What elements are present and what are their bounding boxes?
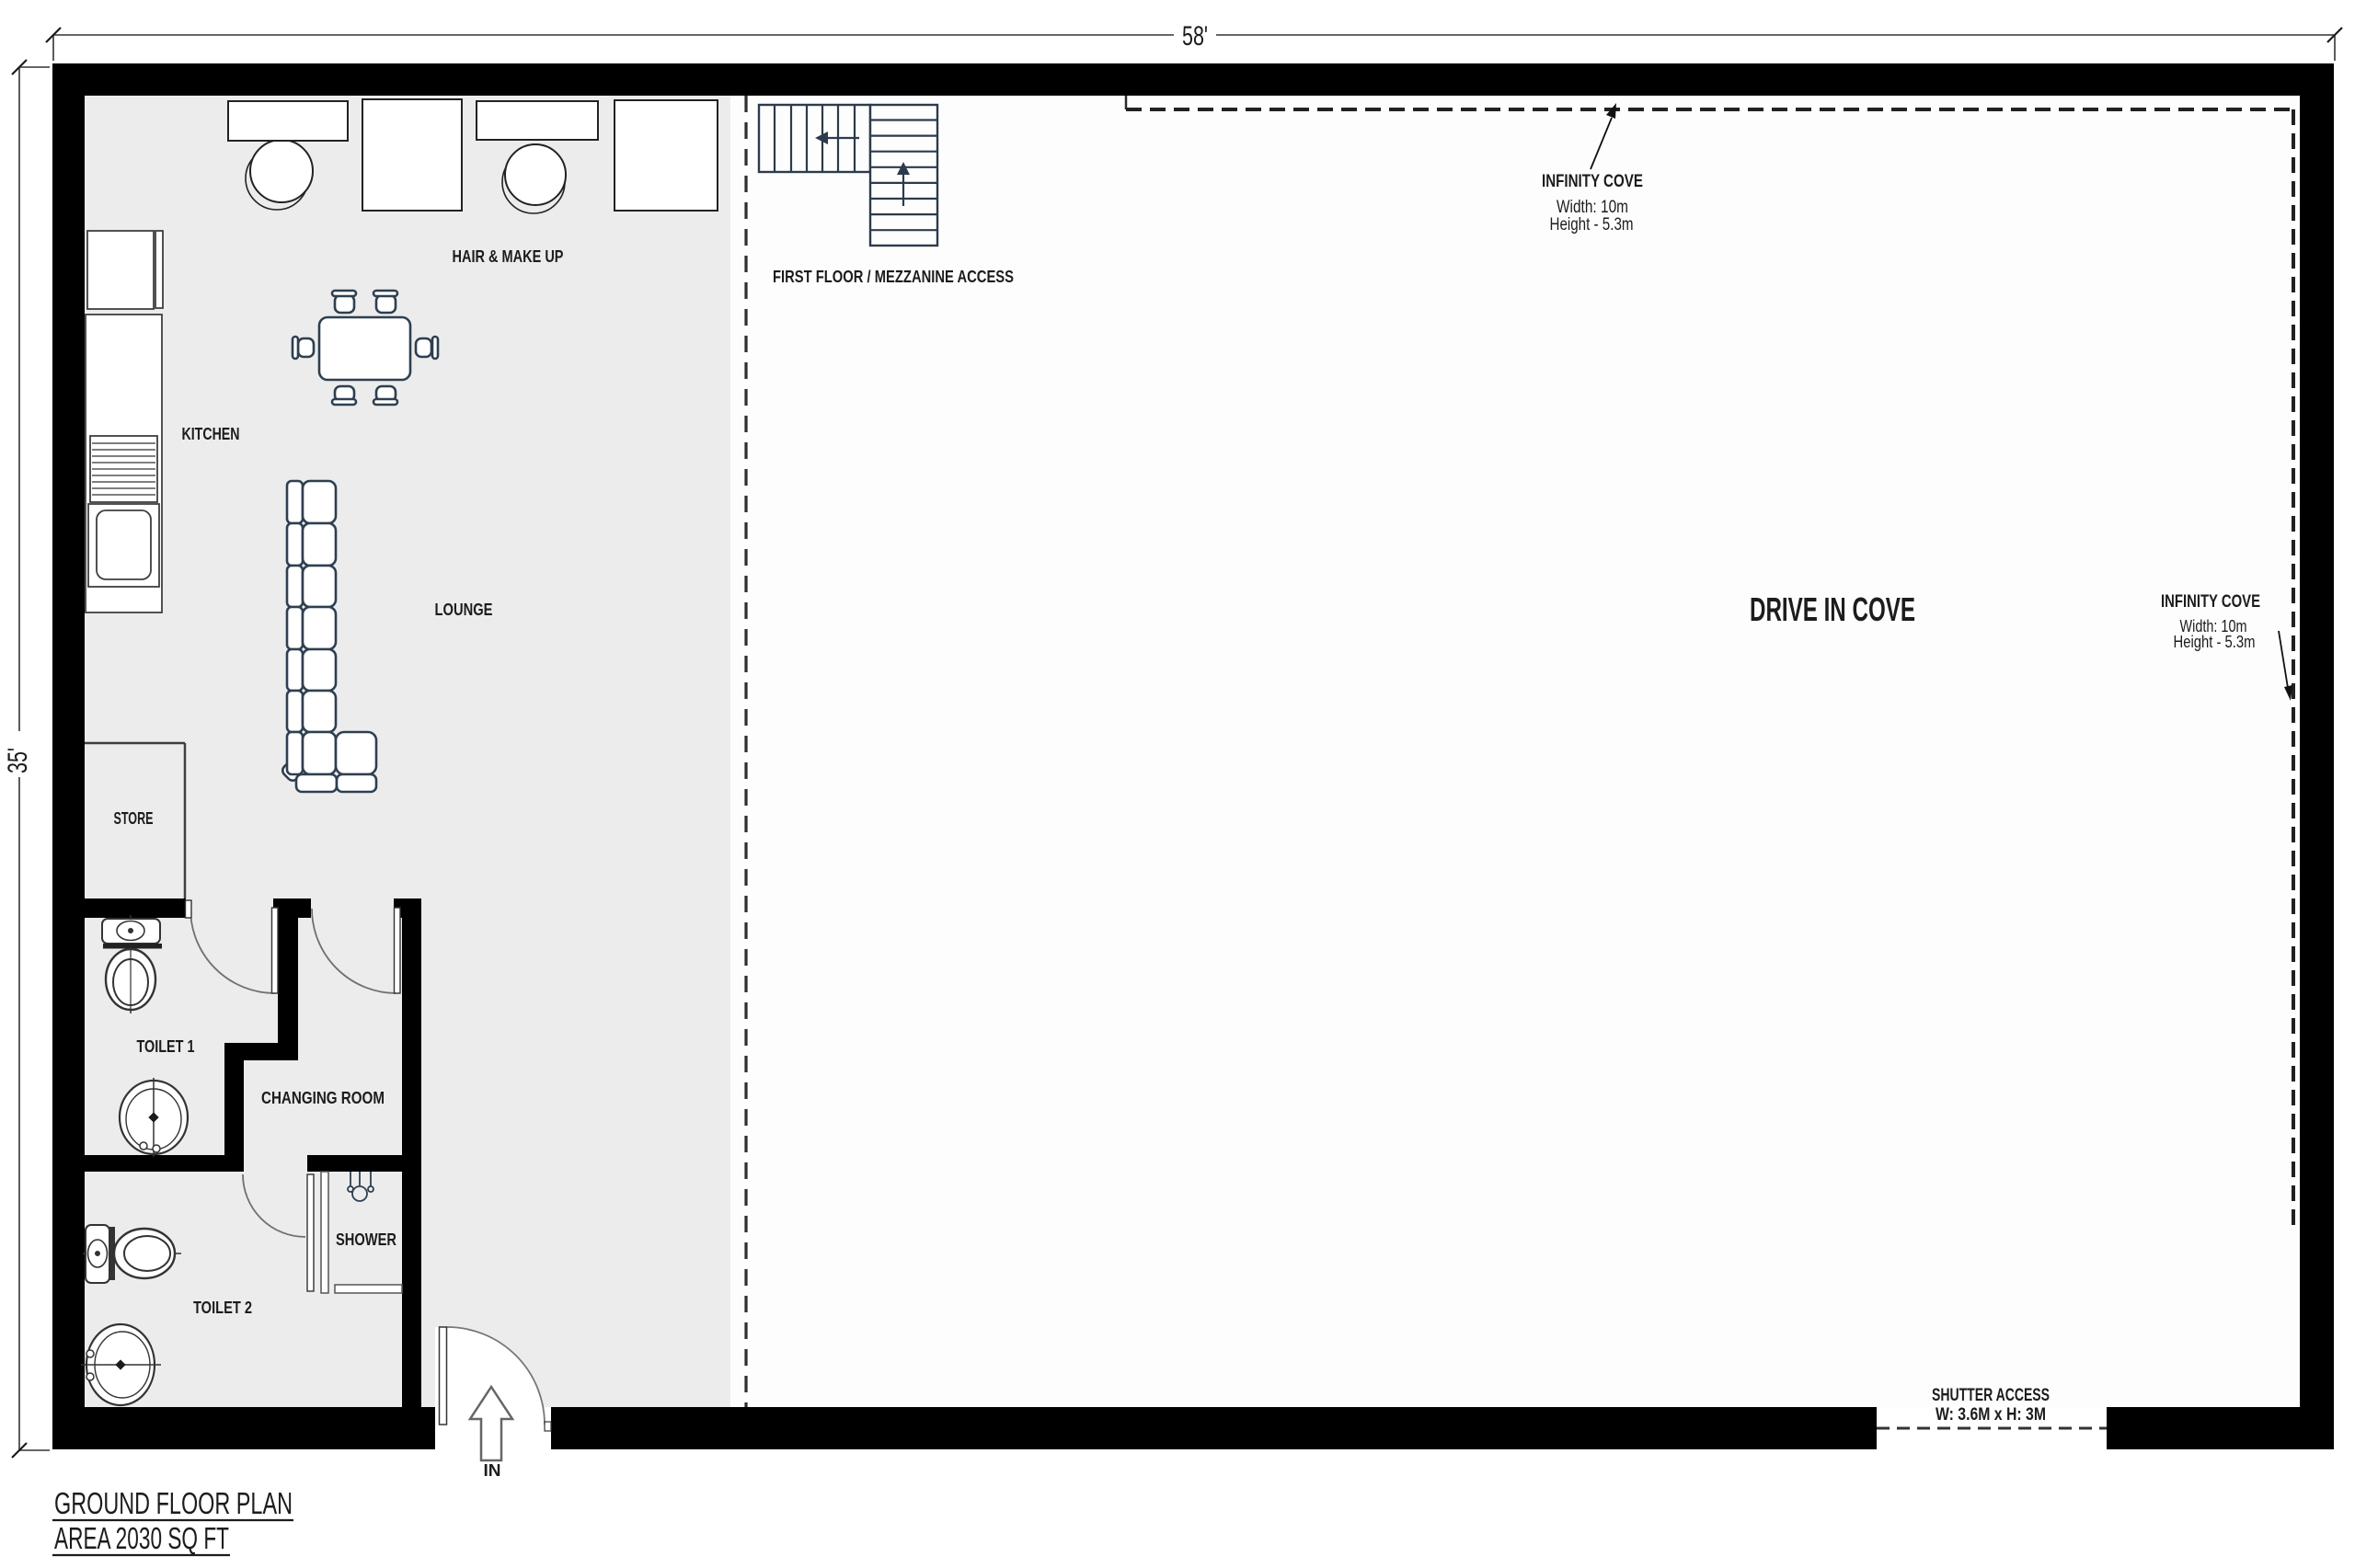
svg-text:STORE: STORE <box>114 809 154 828</box>
svg-text:SHOWER: SHOWER <box>336 1230 396 1249</box>
svg-text:Height - 5.3m: Height - 5.3m <box>1550 215 1634 235</box>
svg-text:GROUND FLOOR PLAN: GROUND FLOOR PLAN <box>54 1486 293 1520</box>
svg-text:FIRST FLOOR / MEZZANINE ACCESS: FIRST FLOOR / MEZZANINE ACCESS <box>773 268 1014 286</box>
svg-text:W: 3.6M x H: 3M: W: 3.6M x H: 3M <box>1936 1405 2046 1425</box>
svg-text:KITCHEN: KITCHEN <box>182 425 240 443</box>
svg-text:Width: 10m: Width: 10m <box>1557 198 1628 217</box>
svg-text:SHUTTER ACCESS: SHUTTER ACCESS <box>1932 1386 2050 1405</box>
svg-text:INFINITY COVE: INFINITY COVE <box>1542 172 1643 191</box>
svg-text:DRIVE IN COVE: DRIVE IN COVE <box>1750 590 1915 628</box>
svg-text:TOILET 1: TOILET 1 <box>137 1037 195 1056</box>
svg-text:Height - 5.3m: Height - 5.3m <box>2174 633 2256 651</box>
svg-text:LOUNGE: LOUNGE <box>435 601 493 619</box>
svg-text:HAIR & MAKE UP: HAIR & MAKE UP <box>453 247 564 266</box>
svg-text:TOILET 2: TOILET 2 <box>193 1299 252 1317</box>
svg-text:INFINITY COVE: INFINITY COVE <box>2161 592 2260 612</box>
svg-text:35': 35' <box>3 748 33 773</box>
svg-text:IN: IN <box>484 1461 501 1480</box>
svg-text:AREA 2030 SQ FT: AREA 2030 SQ FT <box>54 1521 229 1555</box>
svg-text:58': 58' <box>1182 21 1208 52</box>
svg-text:CHANGING ROOM: CHANGING ROOM <box>261 1089 385 1107</box>
